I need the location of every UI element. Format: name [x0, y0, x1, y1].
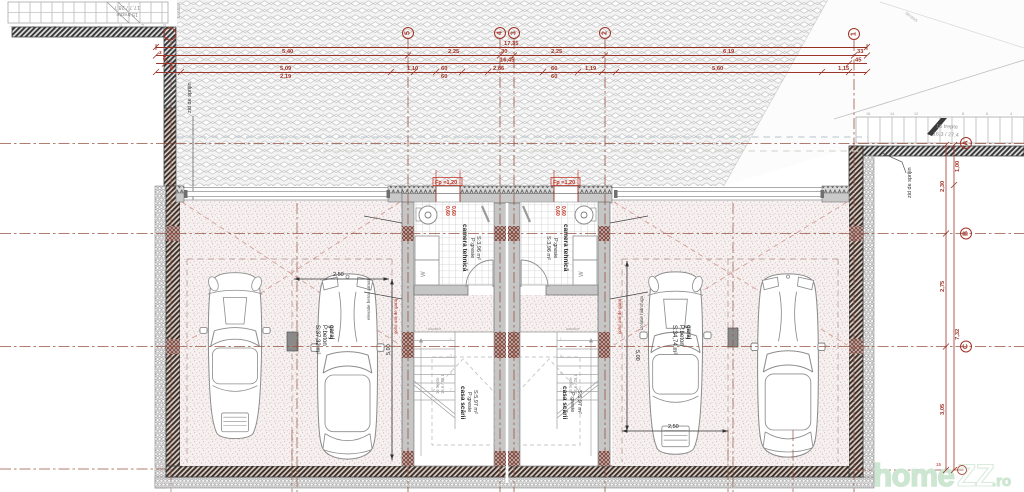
svg-text:60: 60 [551, 66, 557, 72]
svg-text:S:5,97 m²: S:5,97 m² [472, 390, 478, 414]
svg-text:2,86: 2,86 [493, 66, 505, 72]
svg-text:P:beton: P:beton [678, 325, 684, 346]
svg-text:S:5,97 m²: S:5,97 m² [576, 390, 582, 414]
svg-text:P:gresie: P:gresie [552, 238, 558, 258]
svg-text:7: 7 [450, 388, 452, 392]
svg-text:camera tehnică: camera tehnică [461, 224, 468, 272]
svg-text:5,09: 5,09 [280, 66, 292, 72]
svg-text:A: A [963, 140, 970, 145]
svg-text:3: 3 [560, 354, 562, 358]
svg-text:S:3,96 m²: S:3,96 m² [475, 236, 481, 260]
svg-text:zid de sprijin: zid de sprijin [187, 82, 193, 113]
svg-text:60: 60 [441, 66, 447, 72]
svg-text:W: W [421, 271, 427, 277]
svg-text:5: 5 [560, 371, 562, 375]
svg-text:12: 12 [914, 112, 918, 116]
svg-text:2: 2 [602, 31, 609, 35]
svg-text:0,60: 0,60 [554, 206, 560, 216]
svg-text:2,50: 2,50 [333, 272, 344, 278]
svg-text:16: 16 [866, 112, 870, 116]
svg-text:30: 30 [162, 54, 167, 60]
svg-text:4: 4 [497, 31, 504, 35]
svg-text:uscator: uscator [176, 3, 181, 18]
svg-text:2,19: 2,19 [280, 74, 292, 80]
svg-text:izolatie hidrofuga: izolatie hidrofuga [639, 295, 644, 330]
svg-text:1,15: 1,15 [838, 66, 850, 72]
svg-text:6: 6 [986, 112, 988, 116]
svg-text:5,00: 5,00 [386, 344, 392, 355]
svg-text:60: 60 [551, 74, 557, 80]
svg-text:P:gresie: P:gresie [569, 392, 575, 412]
svg-text:1: 1 [851, 32, 858, 36]
svg-text:3: 3 [450, 354, 452, 358]
svg-text:Fp =1,20: Fp =1,20 [553, 180, 575, 186]
svg-text:4: 4 [1010, 112, 1012, 116]
svg-text:S:34,74 m²: S:34,74 m² [671, 325, 677, 354]
svg-text:16 trepte: 16 trepte [936, 124, 958, 131]
svg-text:5,40: 5,40 [282, 49, 293, 55]
svg-text:zid de sprijin: zid de sprijin [907, 167, 913, 198]
svg-text:15: 15 [936, 462, 942, 467]
svg-text:Fp =1,20: Fp =1,20 [435, 180, 457, 186]
svg-text:45: 45 [855, 58, 862, 64]
svg-text:5,00: 5,00 [634, 350, 640, 361]
svg-text:S:3,96 m²: S:3,96 m² [545, 236, 551, 260]
svg-text:0,60: 0,60 [444, 206, 450, 216]
svg-text:W: W [579, 271, 585, 277]
svg-text:2,75: 2,75 [940, 280, 946, 292]
svg-text:C: C [963, 344, 970, 349]
svg-text:45: 45 [169, 64, 174, 70]
svg-text:P:gresie: P:gresie [466, 392, 472, 412]
svg-text:2,50: 2,50 [668, 424, 679, 430]
svg-text:uscator: uscator [428, 326, 442, 331]
svg-text:1: 1 [560, 337, 562, 341]
svg-text:garaj: garaj [685, 325, 691, 340]
svg-text:1: 1 [450, 337, 452, 341]
svg-text:2,25: 2,25 [551, 49, 563, 55]
svg-text:7,32: 7,32 [955, 329, 961, 340]
svg-text:3: 3 [159, 50, 162, 55]
svg-text:17,35: 17,35 [504, 41, 519, 47]
svg-text:3: 3 [511, 31, 518, 35]
svg-text:golul usii de garaj: golul usii de garaj [393, 299, 398, 334]
svg-text:uscator: uscator [566, 326, 580, 331]
svg-text:camera tehnică: camera tehnică [562, 224, 569, 272]
svg-text:1,00: 1,00 [955, 161, 961, 172]
svg-text:5: 5 [450, 371, 452, 375]
svg-text:17,7 / 28,7: 17,7 / 28,7 [114, 4, 140, 10]
svg-text:home: home [873, 457, 954, 492]
svg-text:6,19: 6,19 [723, 49, 735, 55]
svg-text:5,60: 5,60 [712, 66, 723, 72]
svg-text:14: 14 [890, 112, 894, 116]
svg-text:golul usii de garaj: golul usii de garaj [617, 299, 622, 334]
svg-text:30: 30 [501, 49, 507, 55]
svg-text:S:37,32 m²: S:37,32 m² [314, 325, 320, 354]
svg-text:2,30: 2,30 [940, 181, 946, 192]
svg-text:garaj: garaj [328, 325, 334, 340]
svg-text:33: 33 [857, 49, 864, 55]
svg-text:B: B [963, 231, 970, 236]
svg-text:P:gresie: P:gresie [469, 238, 475, 258]
svg-text:0,60: 0,60 [560, 206, 566, 216]
svg-text:16,45: 16,45 [500, 58, 515, 64]
svg-text:casa scării: casa scării [561, 386, 568, 419]
svg-text:1,19: 1,19 [585, 66, 597, 72]
svg-text:2,25: 2,25 [448, 49, 460, 55]
svg-text:1,10: 1,10 [407, 66, 418, 72]
svg-text:60: 60 [441, 74, 447, 80]
svg-text:P:beton: P:beton [321, 325, 327, 346]
svg-text:8: 8 [962, 112, 964, 116]
svg-text:5: 5 [405, 31, 412, 35]
svg-text:casa scării: casa scării [459, 386, 466, 419]
svg-text:3,05: 3,05 [940, 403, 946, 415]
svg-text:0,60: 0,60 [450, 206, 456, 216]
svg-text:16,6 / 28,1: 16,6 / 28,1 [440, 374, 445, 394]
svg-text:.ro: .ro [992, 473, 1011, 490]
svg-text:elevatie beton armat: elevatie beton armat [366, 278, 371, 320]
svg-text:15 trepte: 15 trepte [116, 11, 138, 17]
